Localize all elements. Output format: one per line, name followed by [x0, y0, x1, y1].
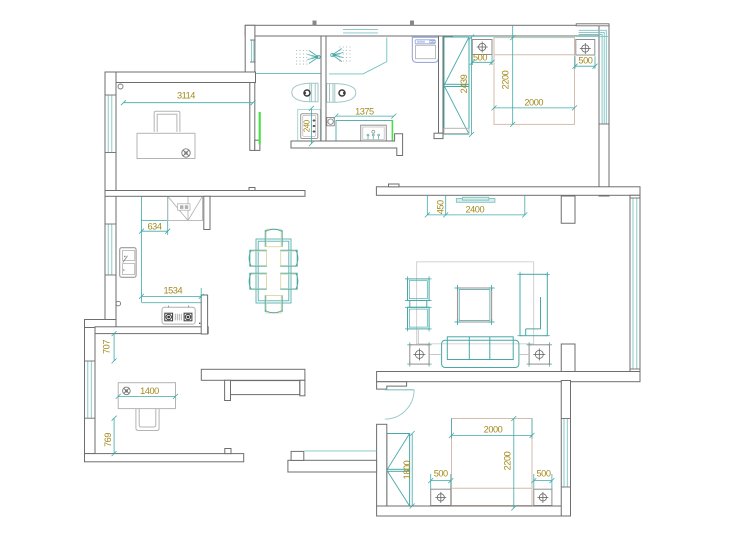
svg-text:1534: 1534 [163, 286, 182, 296]
svg-text:1375: 1375 [355, 107, 374, 117]
svg-text:2000: 2000 [484, 424, 503, 434]
svg-text:769: 769 [103, 433, 113, 447]
svg-text:2000: 2000 [524, 97, 543, 107]
svg-text:500: 500 [537, 469, 551, 479]
svg-text:1800: 1800 [402, 460, 412, 479]
svg-text:2200: 2200 [501, 70, 511, 89]
svg-text:500: 500 [473, 53, 487, 63]
svg-text:500: 500 [434, 469, 448, 479]
svg-text:500: 500 [578, 56, 592, 66]
svg-text:2439: 2439 [459, 74, 469, 93]
svg-text:1400: 1400 [140, 386, 159, 396]
svg-text:450: 450 [436, 200, 446, 214]
svg-text:2200: 2200 [503, 451, 513, 470]
svg-text:240: 240 [303, 119, 312, 132]
svg-text:634: 634 [148, 222, 162, 232]
svg-text:3114: 3114 [177, 91, 195, 101]
svg-text:707: 707 [102, 340, 112, 354]
svg-text:2400: 2400 [465, 204, 484, 214]
